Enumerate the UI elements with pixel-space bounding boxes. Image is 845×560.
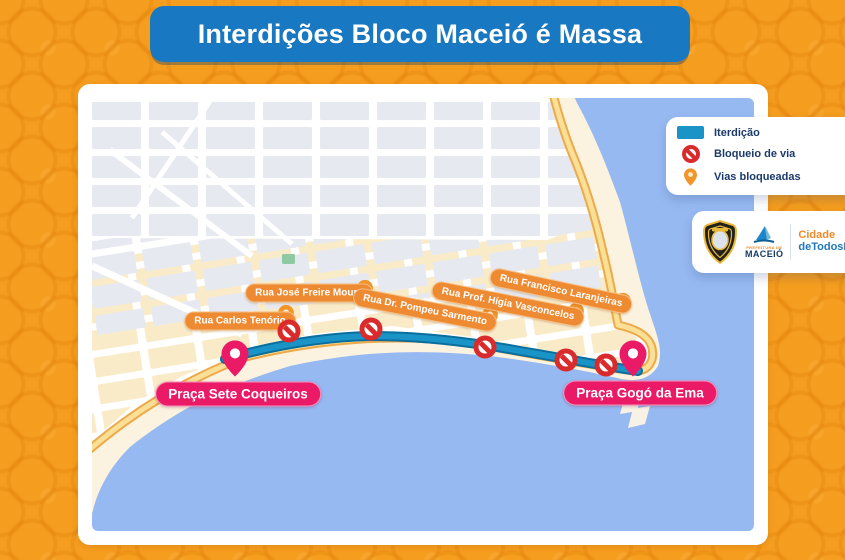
roadblock-icon <box>474 336 497 359</box>
legend-row-roadblock: Bloqueio de via <box>677 145 845 163</box>
map-card: Rua Carlos Tenório Rua José Freire Moura… <box>78 84 768 545</box>
prefeitura-name: MACEIÓ <box>745 250 783 259</box>
logo-divider <box>790 224 791 260</box>
roadblock-icon <box>595 354 618 377</box>
place-pin-icon <box>222 340 249 376</box>
infographic-root: { "title": "Interdições Bloco Maceió é M… <box>0 0 845 560</box>
branding-card: PREFEITURA DE MACEIÓ Cidade deTodosNós <box>692 211 845 273</box>
map-markers: Rua Carlos Tenório Rua José Freire Moura… <box>92 98 754 531</box>
legend-label: Iterdição <box>714 127 760 139</box>
place-label-pill: Praça Sete Coqueiros <box>155 382 321 407</box>
roadblock-icon <box>278 320 301 343</box>
place-label-pill: Praça Gogó da Ema <box>563 381 717 406</box>
roadblock-icon <box>555 349 578 372</box>
legend-row-blocked-ways: Vias bloqueadas <box>677 168 845 186</box>
sail-icon <box>752 225 776 245</box>
interdiction-line-swatch <box>677 126 704 139</box>
map-viewport: Rua Carlos Tenório Rua José Freire Moura… <box>92 98 754 531</box>
blocked-way-pin-icon <box>684 168 697 186</box>
legend-label: Vias bloqueadas <box>714 171 801 183</box>
page-title: Interdições Bloco Maceió é Massa <box>198 19 643 50</box>
prefeitura-logo: PREFEITURA DE MACEIÓ <box>745 225 783 259</box>
title-banner: Interdições Bloco Maceió é Massa <box>150 6 690 62</box>
municipal-guard-badge-icon <box>702 220 738 264</box>
city-slogan: Cidade deTodosNós <box>798 230 845 253</box>
legend-row-interdiction: Iterdição <box>677 126 845 139</box>
legend-card: Iterdição Bloqueio de via Vias bloqueada… <box>666 117 845 195</box>
legend-label: Bloqueio de via <box>714 148 795 160</box>
place-pin-icon <box>620 340 647 376</box>
road-block-icon <box>682 145 700 163</box>
roadblock-icon <box>360 318 383 341</box>
